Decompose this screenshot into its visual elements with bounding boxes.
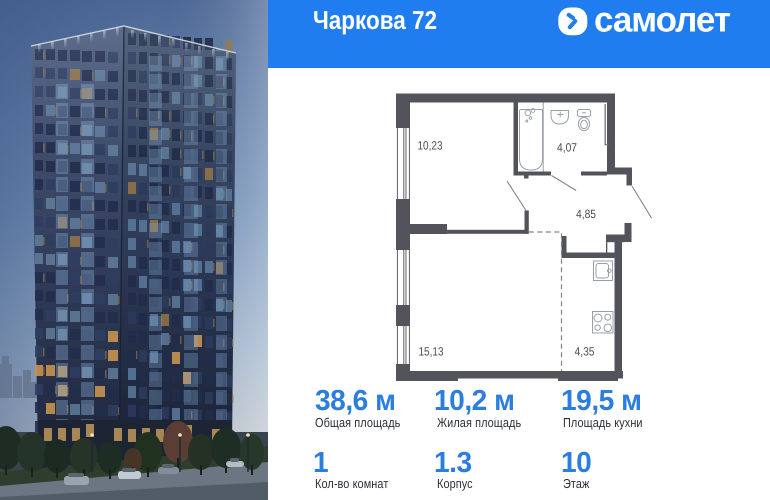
svg-text:10,23: 10,23: [418, 139, 443, 153]
svg-text:4,35: 4,35: [575, 345, 595, 359]
svg-text:15,13: 15,13: [419, 345, 444, 359]
svg-text:4,85: 4,85: [576, 207, 596, 221]
svg-text:4,07: 4,07: [557, 141, 577, 155]
